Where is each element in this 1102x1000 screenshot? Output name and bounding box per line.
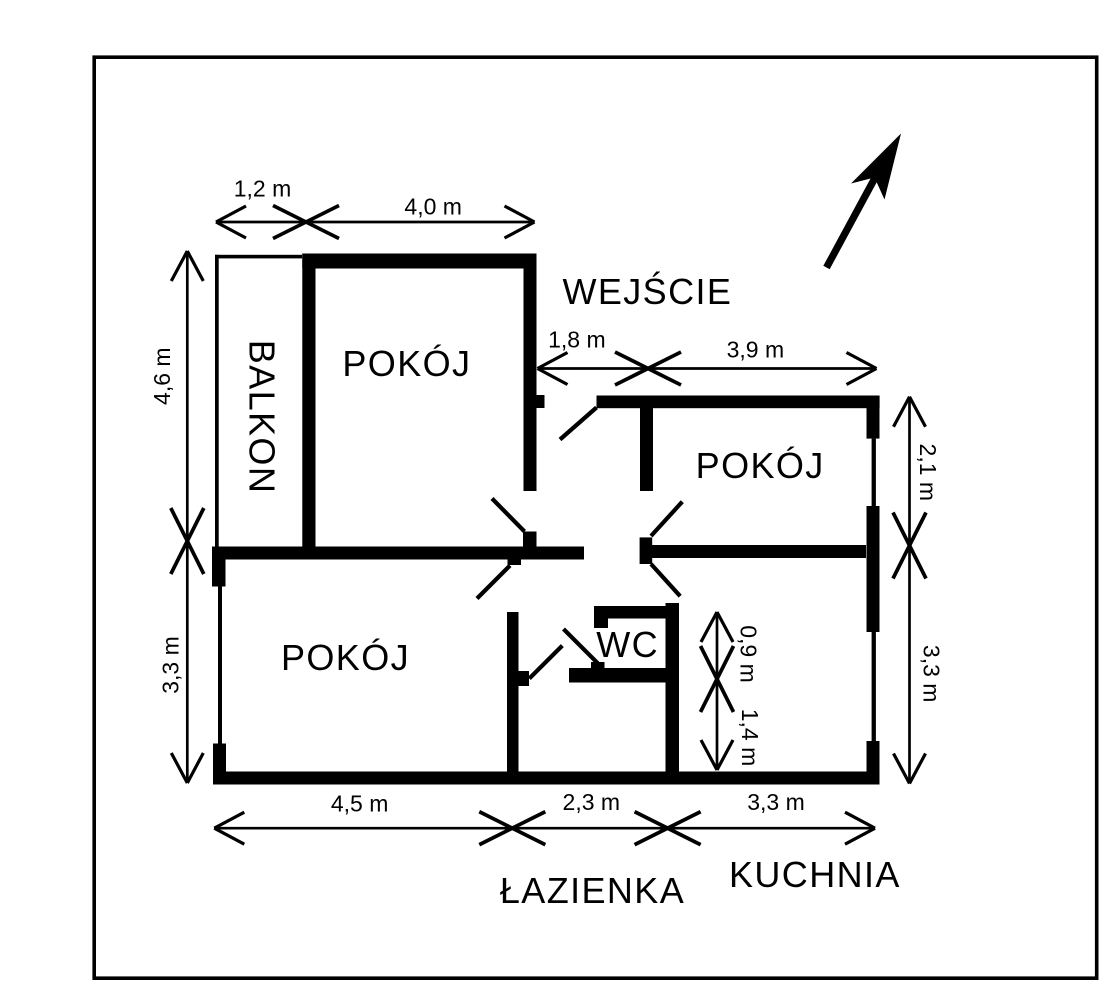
svg-text:BALKON: BALKON bbox=[242, 340, 283, 494]
svg-text:4,6 m: 4,6 m bbox=[149, 347, 175, 405]
svg-text:1,4 m: 1,4 m bbox=[737, 709, 763, 767]
svg-text:ŁAZIENKA: ŁAZIENKA bbox=[500, 870, 685, 911]
svg-text:1,2 m: 1,2 m bbox=[234, 176, 292, 202]
svg-text:2,3 m: 2,3 m bbox=[563, 789, 621, 815]
svg-text:WEJŚCIE: WEJŚCIE bbox=[562, 270, 732, 312]
svg-text:2,1 m: 2,1 m bbox=[915, 444, 941, 502]
svg-text:3,9 m: 3,9 m bbox=[727, 337, 785, 363]
svg-text:1,8 m: 1,8 m bbox=[548, 327, 606, 353]
svg-text:3,3 m: 3,3 m bbox=[747, 789, 805, 815]
svg-text:3,3 m: 3,3 m bbox=[157, 636, 183, 694]
svg-text:0,9 m: 0,9 m bbox=[736, 625, 762, 683]
svg-text:POKÓJ: POKÓJ bbox=[281, 637, 410, 678]
svg-text:3,3 m: 3,3 m bbox=[919, 645, 945, 703]
svg-text:4,5 m: 4,5 m bbox=[331, 791, 389, 817]
svg-text:POKÓJ: POKÓJ bbox=[696, 445, 825, 486]
svg-text:WC: WC bbox=[596, 624, 659, 665]
svg-text:4,0 m: 4,0 m bbox=[404, 193, 462, 219]
svg-text:POKÓJ: POKÓJ bbox=[342, 343, 471, 384]
svg-text:KUCHNIA: KUCHNIA bbox=[729, 854, 901, 895]
